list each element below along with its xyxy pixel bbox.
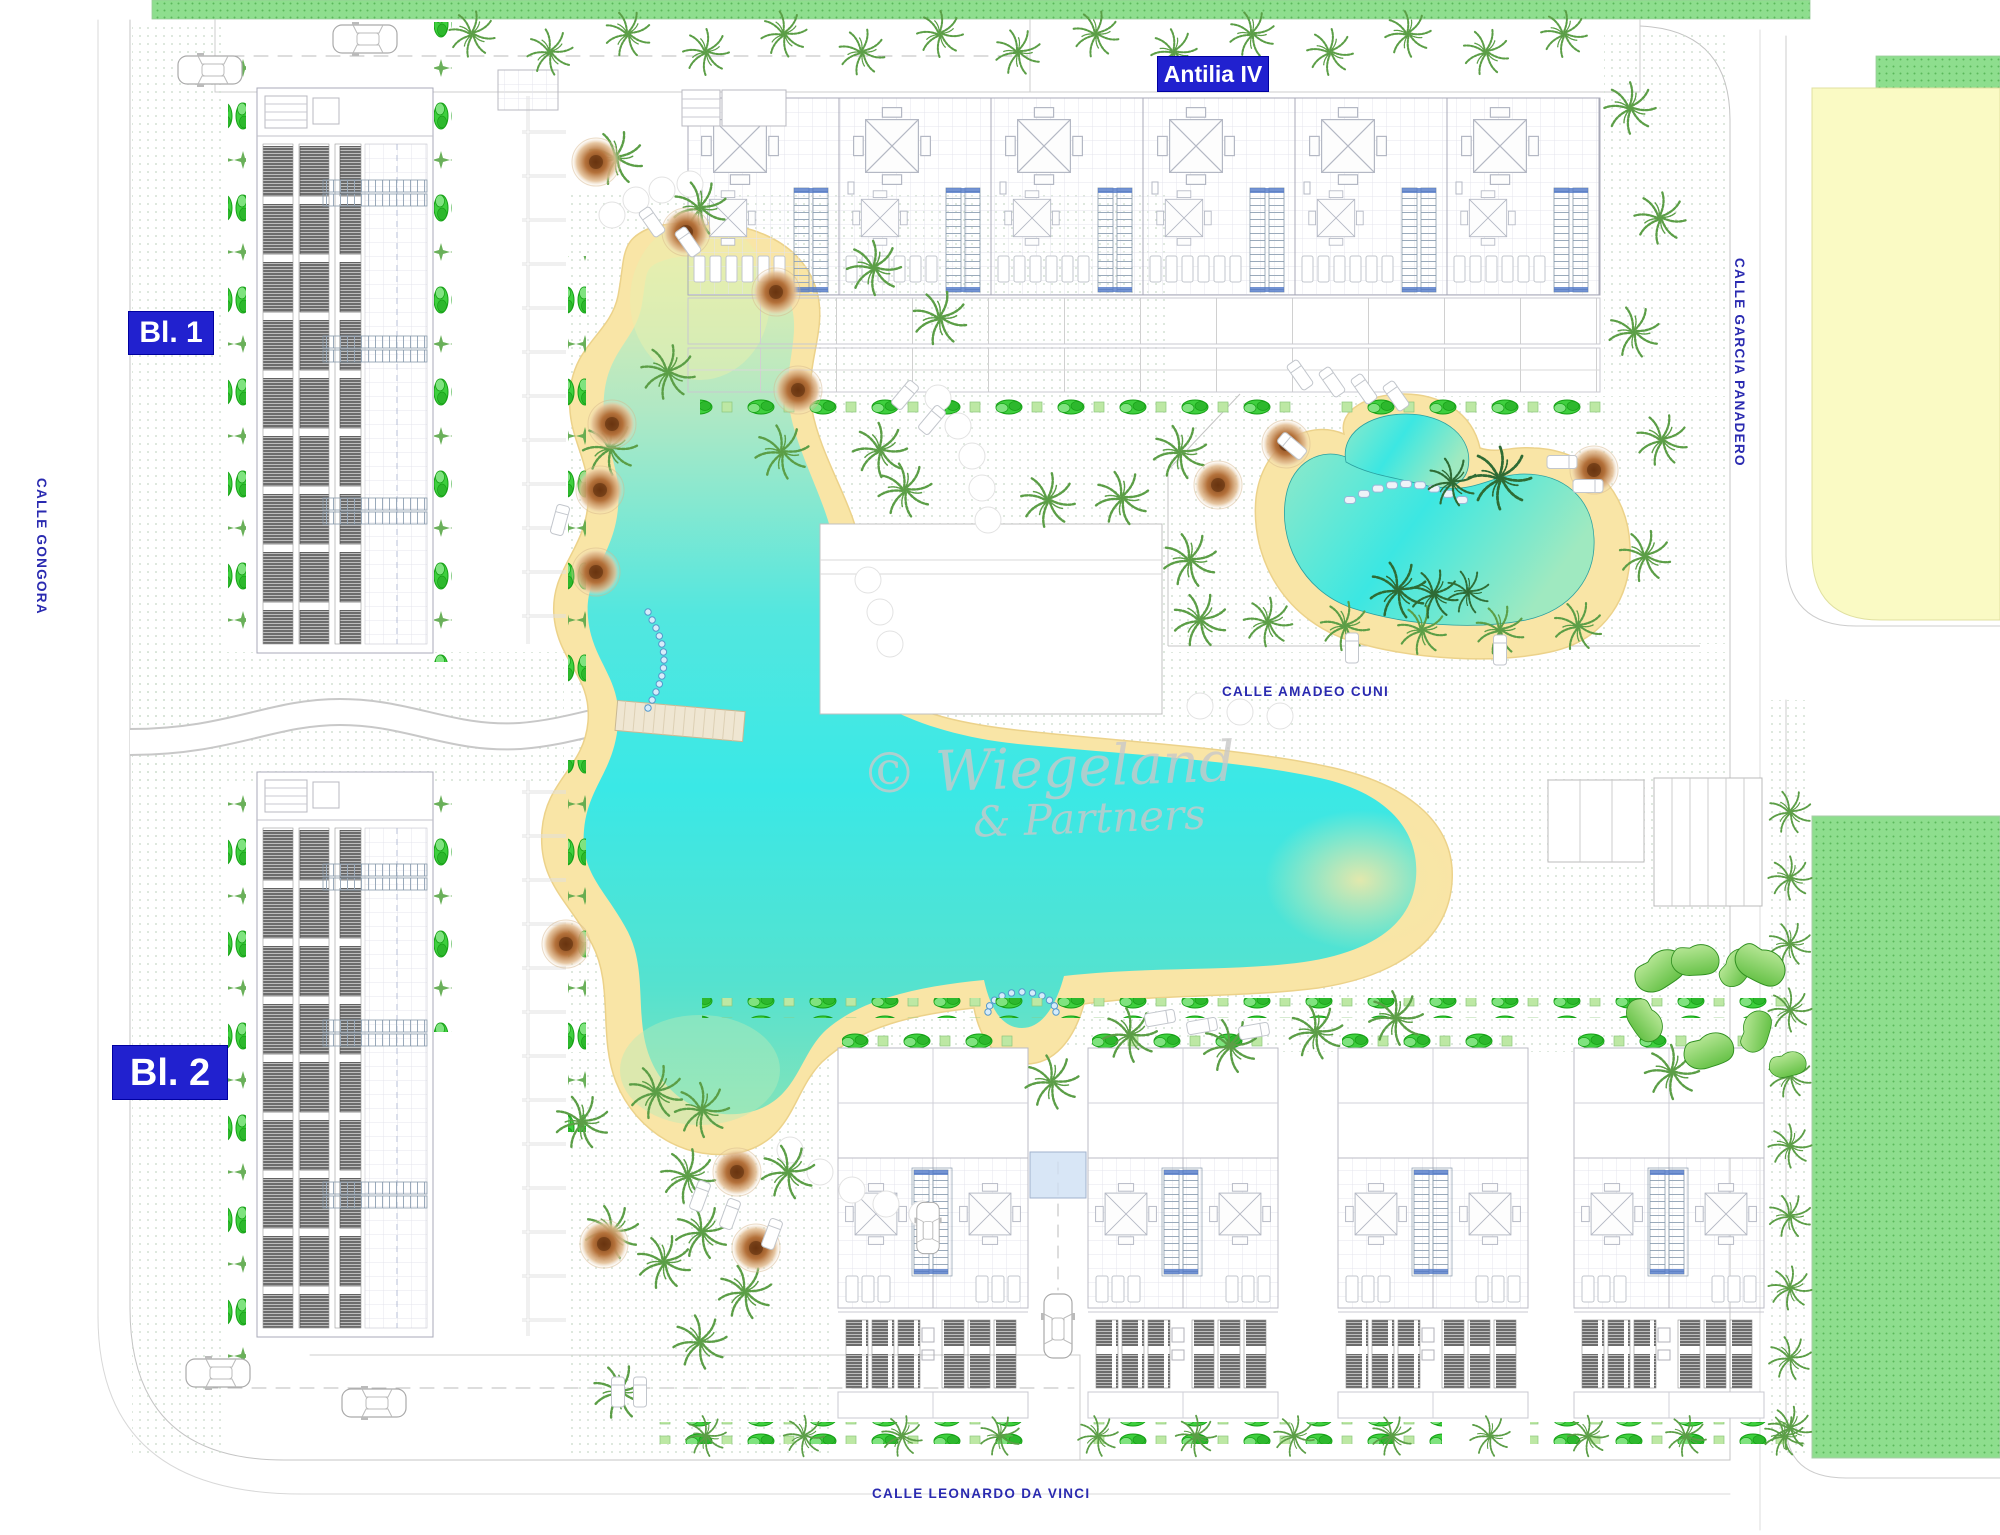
palm-tree-icon [674,20,739,85]
palm-tree-icon [830,20,894,84]
stone-circle [1267,703,1293,729]
block-1-building [257,88,433,653]
palm-tree-icon [988,22,1048,82]
shade-tree-icon [752,268,800,316]
stone-circle [975,507,1001,533]
car-icon [178,53,242,87]
car-icon [342,1386,406,1420]
shade-tree-icon [580,1220,628,1268]
stone-circle [873,1191,899,1217]
terrace-cells [522,96,566,644]
stepping-stones-icon [1345,497,1356,504]
block-2-label: Bl. 2 [112,1045,228,1100]
stepping-stones-icon [653,689,659,695]
stepping-stones-icon [656,633,662,639]
shade-tree-icon [576,466,624,514]
terrace-band [688,298,1600,344]
stone-circle [599,202,625,228]
storage-structure [1548,780,1644,862]
site-plan-drawing [0,0,2000,1535]
hedge-row [702,998,1788,1018]
sun-lounger-icon [1573,480,1603,493]
stepping-stones-icon [1019,989,1025,995]
hedge-row [1530,1422,1788,1444]
street-name-east: CALLE GARCIA PANADERO [1732,258,1747,467]
stone-circle [1227,699,1253,725]
palm-tree-icon [1306,28,1353,75]
shade-tree-icon [572,138,620,186]
townhouse-block [1088,1030,1278,1418]
stone-circle [649,177,675,203]
stone-circle [867,599,893,625]
utility-structure [498,70,558,110]
vacant-lot-yellow [1812,88,2000,620]
stone-circle [959,443,985,469]
hedge-column [228,788,246,1360]
stone-circle [677,171,703,197]
car-icon [333,22,397,56]
stepping-stones-icon [1415,482,1426,489]
stone-circle [945,413,971,439]
stepping-stones-icon [656,681,662,687]
hedge-column [568,256,586,686]
townhouse-block [1338,1030,1528,1418]
palm-tree-icon [1465,1411,1514,1460]
stepping-stones-icon [660,649,666,655]
townhouse-block [1574,1030,1764,1418]
stepping-stones-icon [1401,481,1412,488]
sun-lounger-icon [1494,635,1507,665]
utility-structure [722,90,786,126]
stepping-stones-icon [659,641,665,647]
sun-lounger-icon [1547,456,1577,469]
stepping-stones-icon [1457,497,1468,504]
shade-tree-icon [1194,461,1242,509]
stepping-stones-icon [645,609,651,615]
stepping-stones-icon [1029,990,1035,996]
stone-circle [807,1159,833,1185]
grass-verge-north [152,0,1810,19]
palm-tree-icon [1458,24,1514,80]
street-name-inner: CALLE AMADEO CUNI [1222,684,1389,699]
sun-lounger-icon [634,1377,647,1407]
stone-circle [877,631,903,657]
stepping-stones-icon [653,625,659,631]
stone-circle [1187,693,1213,719]
shade-tree-icon [713,1148,761,1196]
site-plan: Antilia IV Bl. 1 Bl. 2 CALLE GONGORA CAL… [0,0,2000,1535]
shade-tree-icon [774,366,822,414]
stepping-stones-icon [649,617,655,623]
stepping-stones-icon [1373,485,1384,492]
hedge-column [434,788,452,1032]
stepping-stones-icon [661,657,667,663]
adjacent-lots [1812,56,2000,1458]
terrace-cells [522,780,566,1336]
stone-circle [855,567,881,593]
green-field [1812,816,2000,1458]
hedge-column [434,22,452,662]
stepping-stones-icon [1387,482,1398,489]
stepping-stones-icon [649,697,655,703]
car-icon [1041,1294,1075,1358]
car-icon [914,1202,941,1253]
carport-pergola [1030,1152,1086,1198]
sun-lounger-icon [1346,633,1359,663]
sun-lounger-icon [612,1377,625,1407]
shade-tree-icon [572,548,620,596]
shade-tree-icon [542,920,590,968]
stone-circle [969,475,995,501]
street-name-south: CALLE LEONARDO DA VINCI [872,1486,1090,1501]
hedge-row [1340,394,1602,416]
project-label: Antilia IV [1157,56,1269,92]
stepping-stones-icon [659,673,665,679]
stone-circle [839,1177,865,1203]
hedge-column [228,56,246,648]
stepping-stones-icon [1359,490,1370,497]
stepping-stones-icon [660,665,666,671]
stepping-stones-icon [1008,990,1014,996]
street-name-west: CALLE GONGORA [34,478,49,615]
car-icon [186,1356,250,1390]
stepping-stones-icon [645,705,651,711]
shade-tree-icon [588,400,636,448]
block-2-building [257,772,433,1337]
grass-strip [1876,56,2000,88]
block-1-label: Bl. 1 [128,311,214,355]
